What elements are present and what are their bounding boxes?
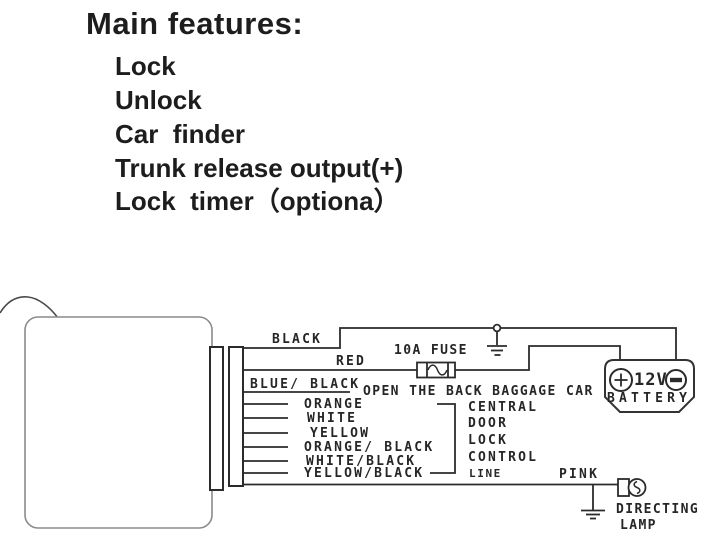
ground-icon-lamp: [581, 485, 605, 519]
junction-node: [494, 325, 501, 332]
central-lock-caption-line5: LINE: [469, 467, 502, 480]
connector-strip-inner: [210, 347, 223, 490]
fuse-label: 10A FUSE: [394, 343, 468, 358]
battery-plus-icon: [610, 369, 632, 391]
red-wire-after-fuse: [455, 346, 620, 370]
directing-lamp-caption-line2: LAMP: [620, 518, 657, 533]
battery-label: BATTERY: [607, 391, 691, 406]
ground-icon: [487, 332, 507, 356]
wire-label-orange-black: ORANGE/ BLACK: [304, 440, 434, 455]
wire-label-pink: PINK: [559, 467, 599, 482]
wire-label-orange: ORANGE: [304, 397, 364, 412]
wiring-diagram-page: Main features: Lock Unlock Car finder Tr…: [0, 0, 724, 555]
connector-strip-outer: [229, 347, 243, 486]
wire-label-red: RED: [336, 354, 366, 369]
central-lock-caption-line1: CENTRAL: [468, 400, 538, 415]
wire-label-blue-black: BLUE/ BLACK: [250, 377, 360, 392]
fuse-icon: [417, 363, 455, 378]
control-module-box: [25, 317, 212, 528]
group-bracket: [430, 404, 455, 473]
antenna-wire: [0, 297, 58, 318]
battery-voltage-label: 12V: [634, 371, 668, 390]
central-lock-caption-line3: LOCK: [468, 433, 508, 448]
wire-label-yellow: YELLOW: [310, 426, 370, 441]
wire-label-black: BLACK: [272, 332, 322, 347]
central-lock-caption-line2: DOOR: [468, 416, 508, 431]
lamp-icon: [618, 479, 646, 496]
wire-label-yellow-black: YELLOW/BLACK: [304, 466, 424, 481]
directing-lamp-caption-line1: DIRECTING: [616, 502, 699, 517]
open-back-baggage-label: OPEN THE BACK BAGGAGE CAR: [363, 384, 594, 399]
central-lock-caption-line4: CONTROL: [468, 450, 538, 465]
battery-minus-icon: [666, 370, 686, 390]
wire-label-white: WHITE: [307, 411, 357, 426]
